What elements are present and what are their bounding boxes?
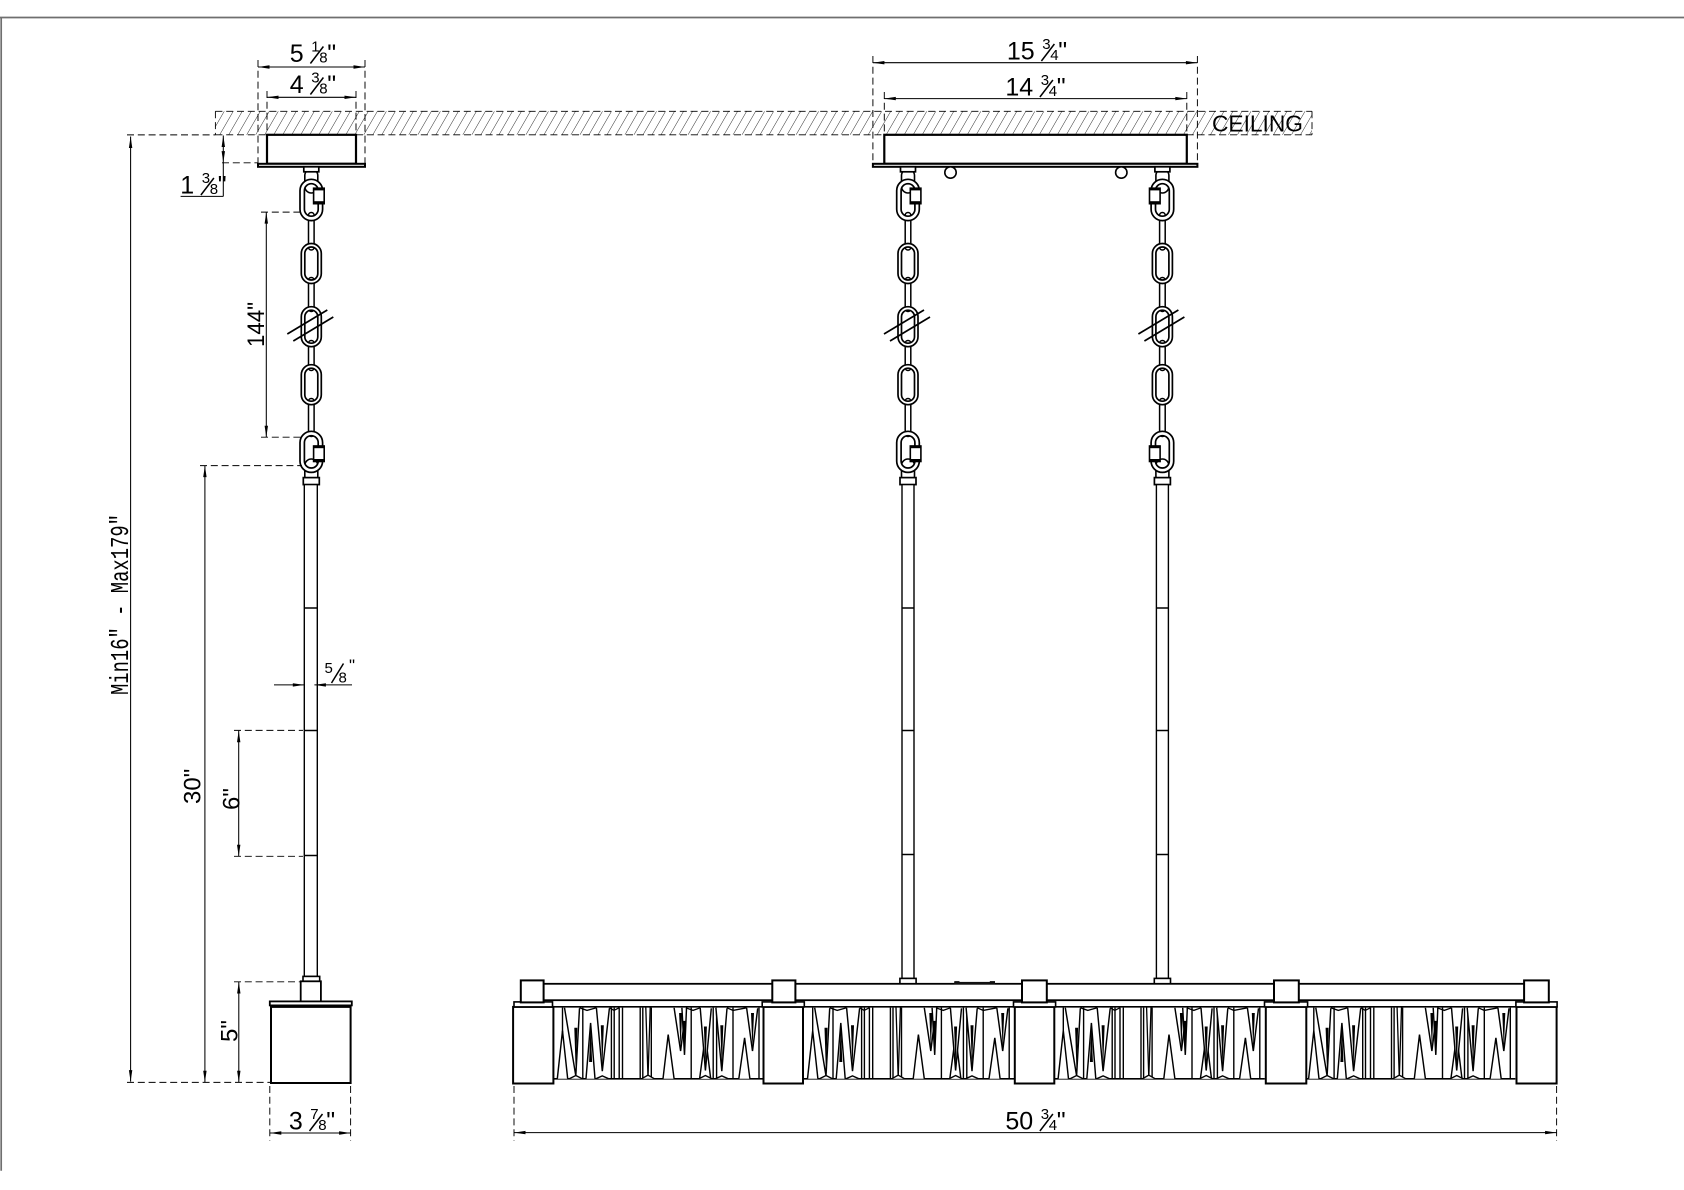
svg-text:4: 4 [290, 71, 304, 99]
svg-text:": " [349, 656, 355, 675]
svg-text:": " [327, 40, 336, 68]
svg-text:6": 6" [219, 788, 246, 810]
svg-text:5: 5 [325, 660, 333, 677]
svg-text:": " [326, 1108, 335, 1136]
svg-text:": " [1057, 1108, 1066, 1136]
svg-text:14: 14 [1005, 74, 1033, 102]
svg-text:30": 30" [180, 769, 207, 804]
svg-text:1: 1 [180, 172, 194, 200]
svg-text:3: 3 [289, 1108, 303, 1136]
svg-text:50: 50 [1005, 1108, 1033, 1136]
svg-text:": " [327, 71, 336, 99]
svg-text:15: 15 [1007, 38, 1035, 66]
svg-text:5: 5 [290, 40, 304, 68]
svg-text:5": 5" [217, 1020, 244, 1042]
svg-text:8: 8 [339, 670, 347, 687]
svg-text:Min16″ - Max179″: Min16″ - Max179″ [106, 514, 136, 695]
svg-text:144": 144" [243, 302, 270, 347]
svg-text:": " [1057, 74, 1066, 102]
svg-text:CEILING: CEILING [1212, 111, 1303, 137]
svg-text:": " [1058, 38, 1067, 66]
svg-text:": " [218, 172, 227, 200]
